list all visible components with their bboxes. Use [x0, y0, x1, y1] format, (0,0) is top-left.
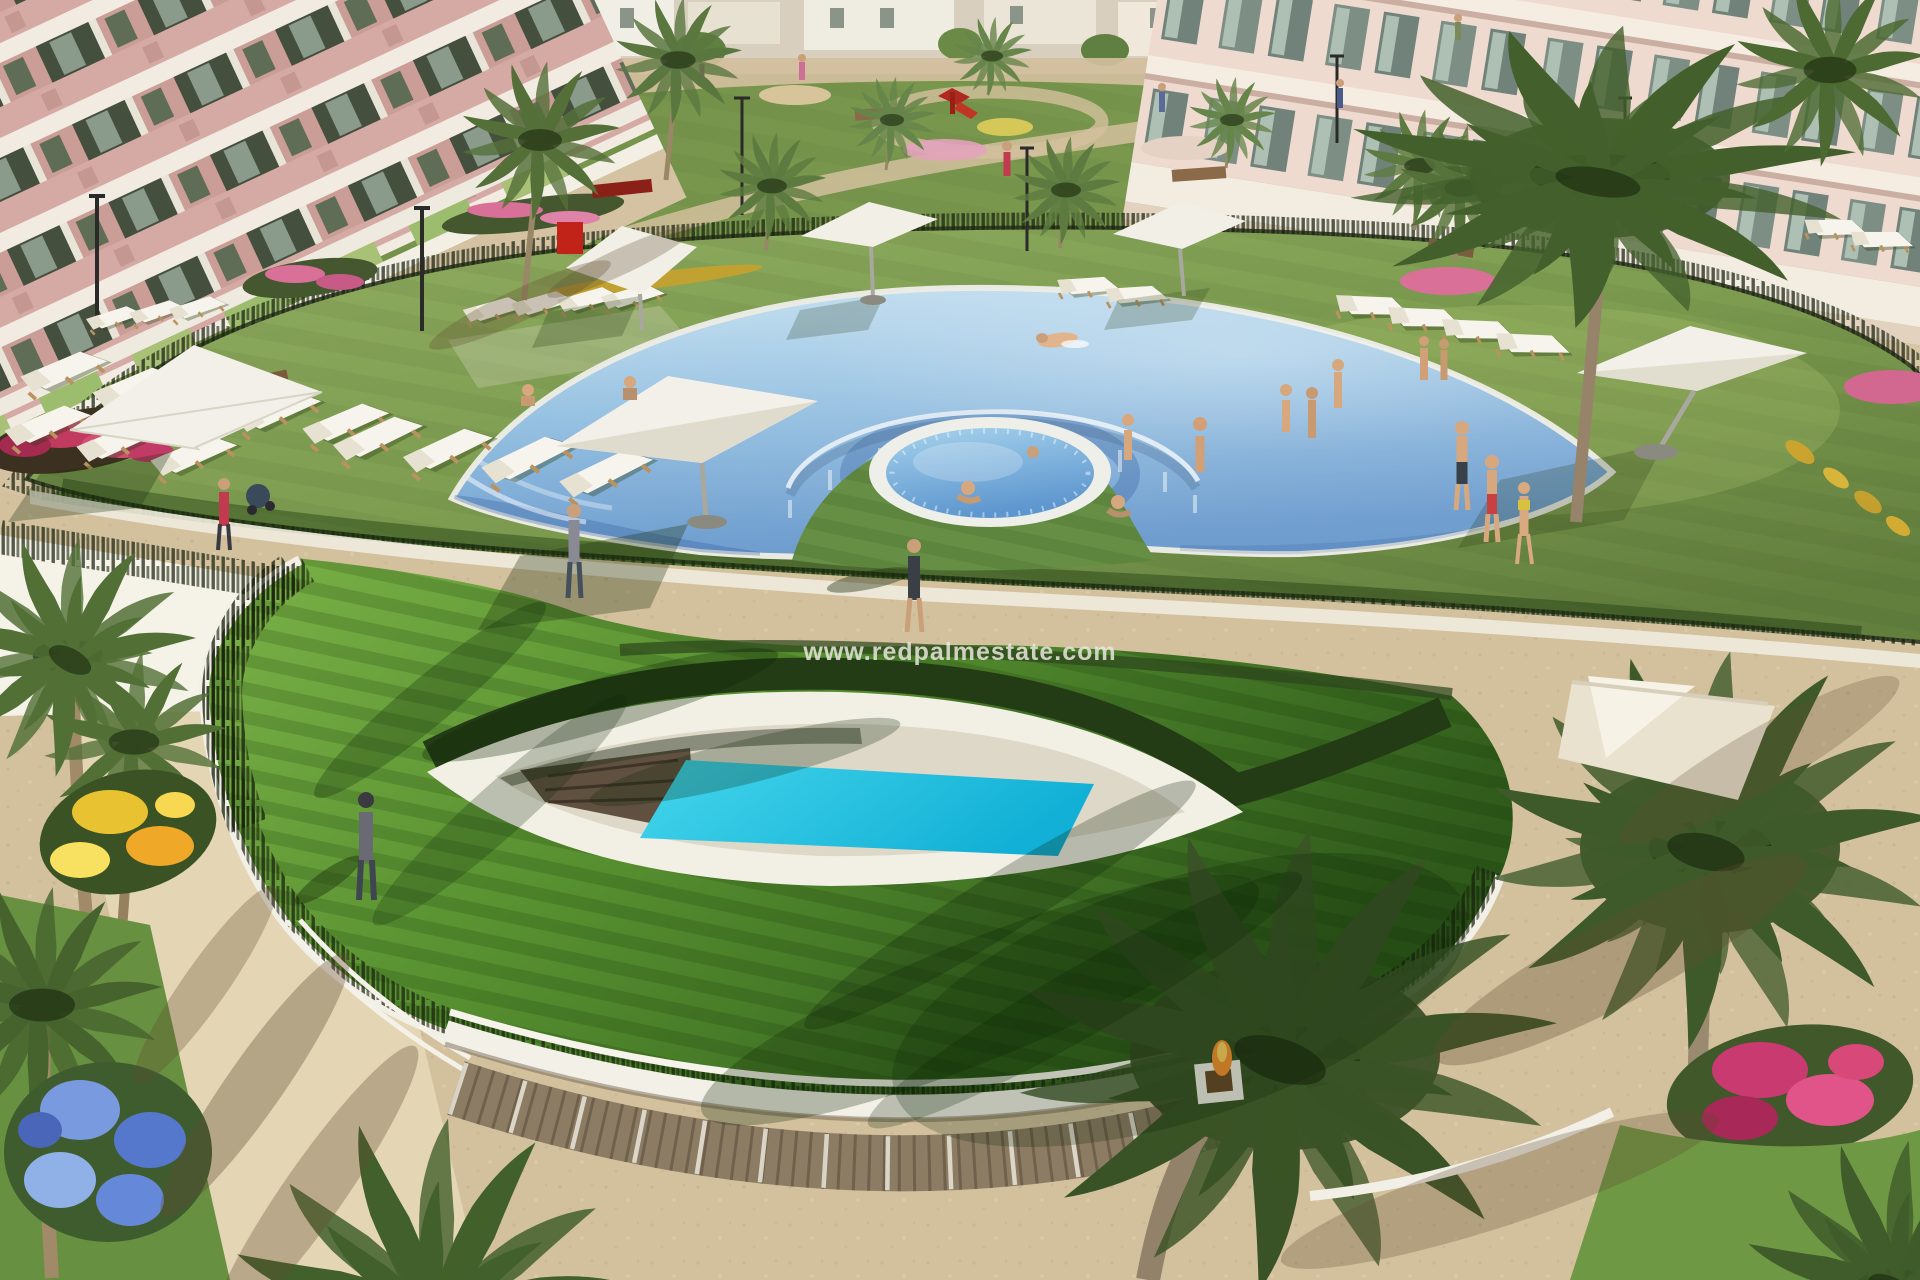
- svg-text:www.redpalmestate.com: www.redpalmestate.com: [802, 638, 1116, 666]
